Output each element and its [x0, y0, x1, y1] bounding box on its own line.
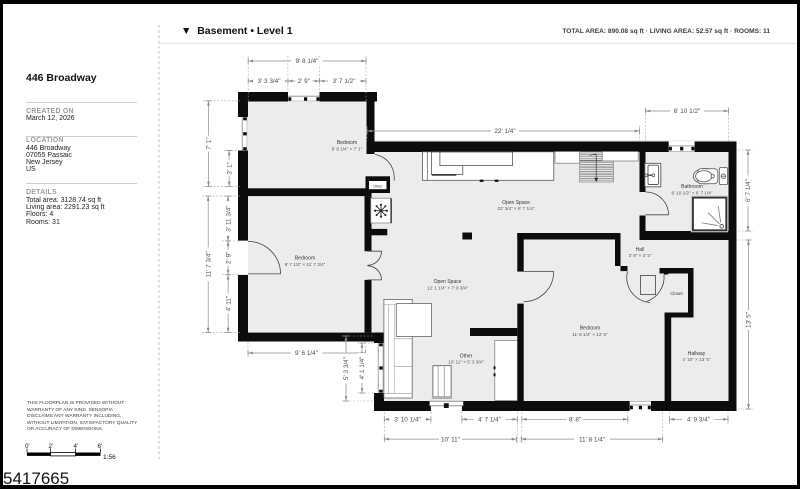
- svg-text:5' 3 3/4": 5' 3 3/4": [343, 357, 350, 380]
- svg-text:13' 5": 13' 5": [746, 312, 753, 328]
- svg-text:10' 11" × 5' 3 3/4": 10' 11" × 5' 3 3/4": [448, 359, 484, 364]
- svg-text:4' 9 3/4": 4' 9 3/4": [687, 417, 710, 424]
- svg-text:6' 10 1/2" × 6' 7 1/4": 6' 10 1/2" × 6' 7 1/4": [672, 190, 713, 195]
- svg-text:7' 1": 7' 1": [206, 137, 213, 149]
- svg-text:8' 8": 8' 8": [569, 417, 581, 424]
- svg-text:2' 9": 2' 9": [225, 252, 232, 264]
- svg-text:11' 8 1/4" × 12' 5": 11' 8 1/4" × 12' 5": [572, 332, 608, 337]
- svg-text:3' 7 1/2": 3' 7 1/2": [332, 78, 355, 85]
- svg-text:22' 3/4" × 6' 7 1/4": 22' 3/4" × 6' 7 1/4": [497, 206, 534, 211]
- svg-text:4' 1 1/4": 4' 1 1/4": [359, 356, 366, 379]
- svg-text:Closet: Closet: [670, 291, 683, 296]
- svg-text:10' 11": 10' 11": [441, 436, 460, 443]
- svg-text:Hallway: Hallway: [688, 351, 706, 357]
- svg-text:Bedroom: Bedroom: [337, 140, 357, 146]
- svg-text:4' 11": 4' 11": [225, 296, 232, 311]
- svg-text:6' 10 1/2": 6' 10 1/2": [674, 108, 701, 115]
- svg-text:4' 10" × 13' 5": 4' 10" × 13' 5": [682, 357, 711, 362]
- svg-text:Other: Other: [373, 184, 383, 188]
- svg-text:11' 8 1/4": 11' 8 1/4": [579, 436, 605, 443]
- svg-text:Bedroom: Bedroom: [580, 326, 600, 332]
- svg-text:9' 7 1/2" × 11' 7 3/4": 9' 7 1/2" × 11' 7 3/4": [285, 262, 326, 267]
- svg-text:Bathroom: Bathroom: [681, 184, 703, 190]
- svg-text:9' 6 1/4": 9' 6 1/4": [295, 350, 318, 357]
- svg-text:3' 10 1/4": 3' 10 1/4": [394, 417, 421, 424]
- svg-text:3' 8" × 2' 5": 3' 8" × 2' 5": [628, 253, 651, 258]
- svg-text:9' 8 1/4": 9' 8 1/4": [295, 58, 318, 65]
- svg-text:Bedroom: Bedroom: [295, 256, 315, 262]
- svg-text:9' 8 1/4" × 7' 1": 9' 8 1/4" × 7' 1": [332, 146, 363, 151]
- svg-text:Open Space: Open Space: [434, 279, 462, 285]
- svg-text:3' 3 3/4": 3' 3 3/4": [257, 78, 280, 85]
- svg-text:22' 1/4": 22' 1/4": [494, 128, 515, 135]
- svg-text:12' 1 1/4" × 7' 8 3/4": 12' 1 1/4" × 7' 8 3/4": [427, 286, 468, 291]
- svg-text:2' 9": 2' 9": [298, 78, 310, 85]
- svg-text:3' 11 3/4": 3' 11 3/4": [225, 205, 232, 231]
- svg-text:3' 1": 3' 1": [226, 162, 233, 174]
- svg-text:4' 7 1/4": 4' 7 1/4": [478, 417, 501, 424]
- svg-text:6' 7 1/4": 6' 7 1/4": [745, 179, 752, 202]
- svg-text:11' 7 3/4": 11' 7 3/4": [205, 251, 212, 277]
